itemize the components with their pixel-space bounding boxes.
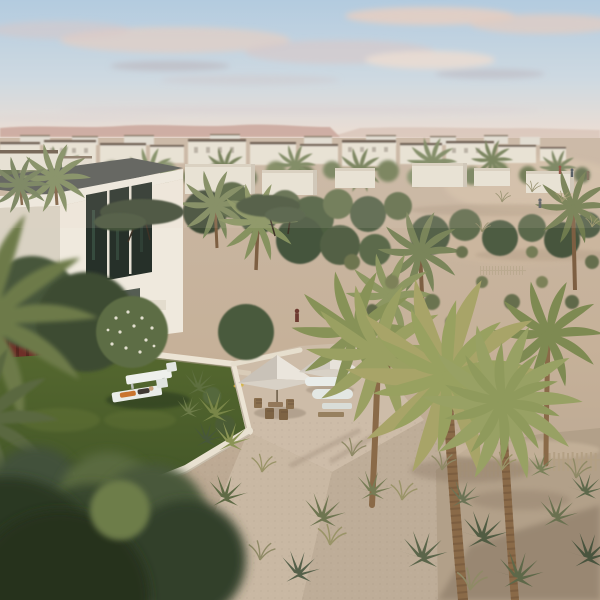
haze-overlay — [0, 138, 600, 228]
rendering-canvas — [0, 0, 600, 600]
community-rendering — [0, 0, 600, 600]
flowering-tree — [96, 296, 168, 368]
pedestrian-figure — [295, 309, 300, 322]
